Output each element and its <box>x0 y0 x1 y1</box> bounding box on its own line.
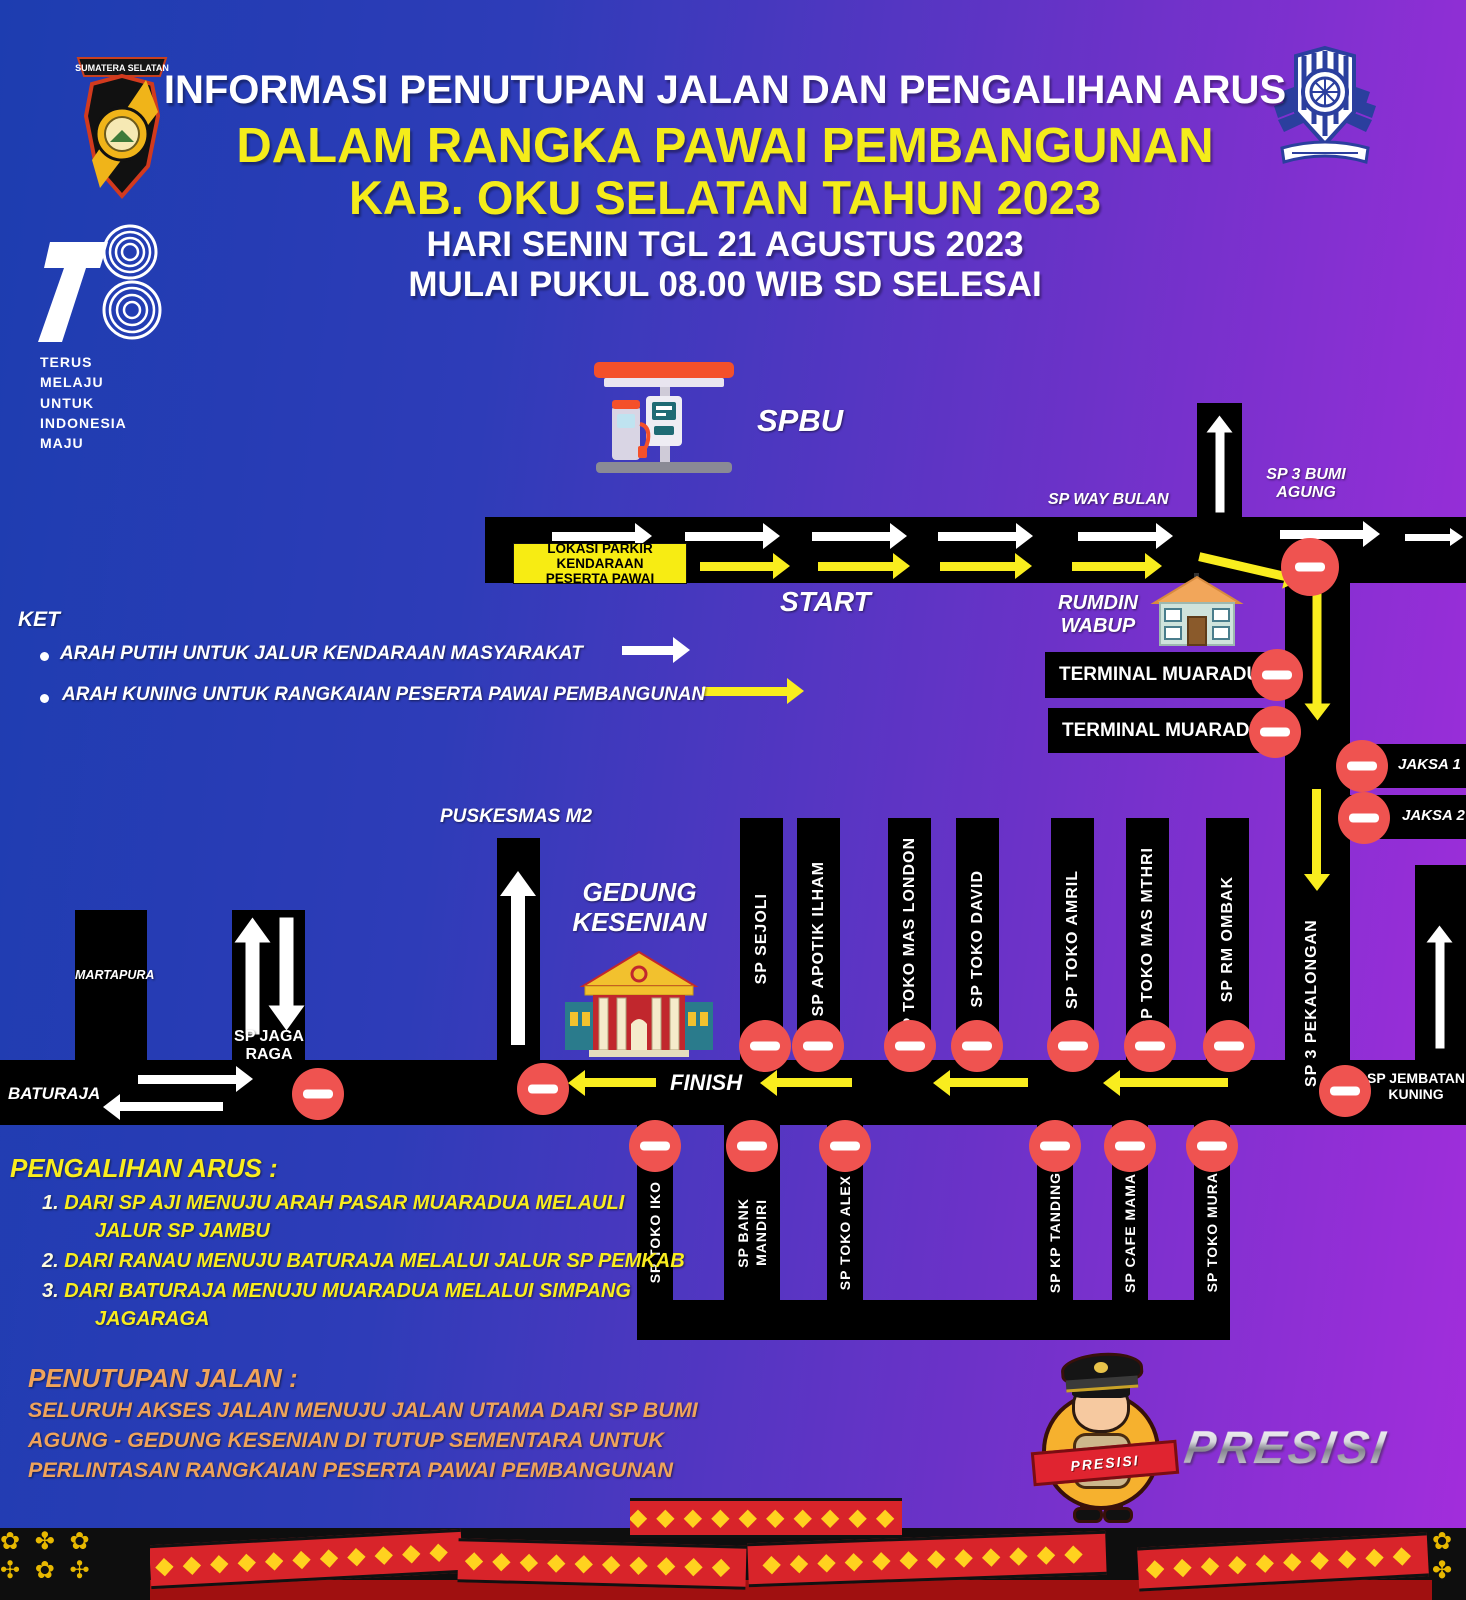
label-terminal-2: TERMINAL MUARADUA <box>1062 720 1277 742</box>
pengalihan-item-1: 1. DARI SP AJI MENUJU ARAH PASAR MUARADU… <box>42 1192 624 1215</box>
branch-label: SP KP TANDING <box>1047 1172 1063 1293</box>
no-entry-sign-terminal-2 <box>1249 706 1301 758</box>
penutupan-line3: PERLINTASAN RANGKAIAN PESERTA PAWAI PEMB… <box>28 1458 673 1483</box>
badge-banner-text: SUMATERA SELATAN <box>75 63 169 73</box>
diamond-band: ◆◆◆◆◆◆◆◆◆◆ <box>457 1538 746 1590</box>
no-entry-sign-toko-mas-mthri <box>1124 1020 1176 1072</box>
parade-arrow-yellow <box>1072 553 1162 579</box>
tagline-line: MAJU <box>40 433 127 453</box>
flow-arrow-up <box>1207 416 1233 513</box>
flow-arrow-white <box>812 523 907 549</box>
parade-arrow-left <box>1103 1070 1228 1096</box>
parking-location-box: LOKASI PARKIR KENDARAAN PESERTA PAWAI <box>513 543 687 584</box>
mascot-shoe <box>1076 1510 1100 1520</box>
flow-arrow-up <box>235 918 271 1035</box>
label-sp-way-bulan: SP WAY BULAN <box>1048 491 1169 509</box>
flow-arrow-white <box>1078 523 1173 549</box>
penutupan-title: PENUTUPAN JALAN : <box>28 1364 298 1394</box>
item-number: 3. <box>42 1280 59 1302</box>
label-spbu: SPBU <box>757 403 843 439</box>
parking-line1: LOKASI PARKIR KENDARAAN <box>514 541 686 571</box>
no-entry-sign-bumi-agung <box>1281 538 1339 596</box>
pengalihan-item-1-line2: JALUR SP JAMBU <box>95 1220 270 1243</box>
pengalihan-item-3-line2: JAGARAGA <box>95 1308 209 1331</box>
no-entry-sign-toko-mas-london <box>884 1020 936 1072</box>
branch-label: SP CAFE MAMA <box>1122 1173 1138 1293</box>
diamond-pattern: ◆◆◆◆◆◆◆◆◆◆◆◆ <box>762 1541 1092 1576</box>
diamond-pattern: ◆◆◆◆◆◆◆◆◆◆◆ <box>155 1539 458 1579</box>
legend-bullet <box>40 652 49 661</box>
parking-line2: PESERTA PAWAI <box>514 571 686 586</box>
label-martapura: MARTAPURA <box>75 968 147 982</box>
tagline-78: TERUS MELAJU UNTUK INDONESIA MAJU <box>40 352 127 453</box>
no-entry-sign-puskesmas <box>517 1063 569 1115</box>
songket-pattern-left: ✿ ✤ ✿ ✣ ✿ ✣ <box>0 1528 150 1600</box>
label-start: START <box>780 586 871 618</box>
label-line: SP 3 BUMI <box>1252 466 1360 484</box>
item-text: DARI SP AJI MENUJU ARAH PASAR MUARADUA M… <box>64 1192 624 1214</box>
gas-station-icon <box>582 358 747 490</box>
flow-arrow-up <box>1427 926 1453 1049</box>
branch-label: SP TOKO DAVID <box>969 870 987 1007</box>
road-martapura <box>75 910 147 1060</box>
label-terminal-1: TERMINAL MUARADUA <box>1059 664 1274 686</box>
label-line: KESENIAN <box>562 908 717 938</box>
flow-arrow-up <box>500 871 536 1045</box>
branch-label: SP TOKO MURA <box>1204 1172 1220 1292</box>
no-entry-sign-jaksa-1 <box>1336 740 1388 792</box>
branch-label: SP TOKO MAS MTHRI <box>1139 847 1157 1031</box>
house-icon <box>1150 571 1244 649</box>
presisi-wordmark: PRESISI <box>1181 1420 1391 1474</box>
flow-arrow-left <box>103 1094 223 1120</box>
label-baturaja: BATURAJA <box>8 1084 100 1104</box>
item-text: DARI RANAU MENUJU BATURAJA MELALUI JALUR… <box>64 1250 684 1272</box>
police-badge-logo: SUMATERA SELATAN <box>70 50 174 206</box>
branch-label: SP BANK <box>735 1198 751 1268</box>
pengalihan-item-2: 2. DARI RANAU MENUJU BATURAJA MELALUI JA… <box>42 1250 685 1273</box>
label-sp3-bumi-agung: SP 3 BUMI AGUNG <box>1252 466 1360 503</box>
item-number: 1. <box>42 1192 59 1214</box>
no-entry-sign-cafe-mama <box>1104 1120 1156 1172</box>
label-line: KUNING <box>1366 1086 1466 1102</box>
hut-ri-78-logo <box>30 212 180 354</box>
poster-title-line2: DALAM RANGKA PAWAI PEMBANGUNAN <box>160 118 1290 174</box>
parade-arrow-yellow <box>700 553 790 579</box>
road-lower-connector <box>637 1300 1230 1340</box>
legend-bullet <box>40 694 49 703</box>
tagline-line: MELAJU <box>40 372 127 392</box>
flower-icon: ✤ <box>1432 1557 1456 1584</box>
legend-arrow-yellow <box>702 678 804 704</box>
poster-title-line1: INFORMASI PENUTUPAN JALAN DAN PENGALIHAN… <box>160 68 1290 113</box>
poster-subtitle-line1: HARI SENIN TGL 21 AGUSTUS 2023 <box>160 225 1290 265</box>
label-line: RAGA <box>228 1046 310 1064</box>
branch-label: SP TOKO ALEX <box>837 1175 853 1290</box>
penutupan-line1: SELURUH AKSES JALAN MENUJU JALAN UTAMA D… <box>28 1398 698 1423</box>
mascot-shoe <box>1106 1510 1130 1520</box>
label-line: WABUP <box>1048 615 1148 638</box>
diamond-band: ◆◆◆◆◆◆◆◆◆◆ <box>630 1498 902 1538</box>
tagline-line: UNTUK <box>40 393 127 413</box>
legend-title: KET <box>18 608 60 632</box>
branch-label: SP TOKO AMRIL <box>1064 870 1082 1009</box>
no-entry-sign-bank-mandiri <box>726 1120 778 1172</box>
label-line: GEDUNG <box>562 878 717 908</box>
parade-arrow-left <box>568 1070 656 1096</box>
no-entry-sign-kp-tanding <box>1029 1120 1081 1172</box>
parade-arrow-down <box>1305 594 1331 721</box>
no-entry-sign-sejoli <box>739 1020 791 1072</box>
parade-arrow-left <box>933 1070 1028 1096</box>
tagline-line: TERUS <box>40 352 127 372</box>
road-terminal-muaradua-1: TERMINAL MUARADUA <box>1045 652 1277 698</box>
legend-arrow-white <box>622 637 690 663</box>
label-gedung-kesenian: GEDUNG KESENIAN <box>562 878 717 938</box>
label-finish: FINISH <box>670 1070 742 1095</box>
songket-pattern-right: ✿ ✤ <box>1432 1528 1466 1600</box>
flow-arrow-right <box>138 1066 253 1092</box>
label-rumdin-wabup: RUMDIN WABUP <box>1048 592 1148 638</box>
parade-arrow-yellow <box>818 553 910 579</box>
parade-arrow-yellow <box>940 553 1032 579</box>
mascot-cap-emblem <box>1094 1362 1108 1373</box>
flower-icon: ✣ ✿ ✣ <box>0 1557 94 1584</box>
infographic-poster: SUMATERA SELATAN INFORMASI PENUTUPAN JAL… <box>0 0 1466 1600</box>
no-entry-sign-toko-amril <box>1047 1020 1099 1072</box>
label-sp-jaga-raga: SP JAGA RAGA <box>228 1028 310 1065</box>
flow-arrow-down <box>269 918 305 1031</box>
legend-item-yellow: ARAH KUNING UNTUK RANGKAIAN PESERTA PAWA… <box>62 684 705 706</box>
label-line: AGUNG <box>1252 484 1360 502</box>
branch-label: SP APOTIK ILHAM <box>810 861 828 1016</box>
item-text: DARI BATURAJA MENUJU MUARADUA MELALUI SI… <box>64 1280 631 1302</box>
label-jaksa-2: JAKSA 2 <box>1402 807 1465 824</box>
label-line: SP JEMBATAN <box>1366 1070 1466 1086</box>
pengalihan-title: PENGALIHAN ARUS : <box>10 1154 278 1184</box>
tagline-line: INDONESIA <box>40 413 127 433</box>
no-entry-sign-rm-ombak <box>1203 1020 1255 1072</box>
flow-arrow-white <box>1405 524 1463 550</box>
parade-arrow-left <box>760 1070 852 1096</box>
diamond-pattern: ◆◆◆◆◆◆◆◆◆◆ <box>464 1548 739 1579</box>
diamond-pattern: ◆◆◆◆◆◆◆◆◆◆ <box>1145 1543 1420 1581</box>
penutupan-line2: AGUNG - GEDUNG KESENIAN DI TUTUP SEMENTA… <box>28 1428 664 1453</box>
flower-icon: ✿ <box>1432 1528 1456 1555</box>
label-sp3-pekalongan: SP 3 PEKALONGAN <box>1303 862 1321 1087</box>
branch-label: SP SEJOLI <box>753 893 771 984</box>
label-puskesmas: PUSKESMAS M2 <box>440 806 592 828</box>
no-entry-sign-jembatan-kuning <box>1319 1065 1371 1117</box>
diamond-pattern: ◆◆◆◆◆◆◆◆◆◆ <box>630 1506 902 1530</box>
flow-arrow-white <box>685 523 780 549</box>
poster-title-line3: KAB. OKU SELATAN TAHUN 2023 <box>160 170 1290 225</box>
label-line: RUMDIN <box>1048 592 1148 615</box>
flower-icon: ✿ ✤ ✿ <box>0 1528 94 1555</box>
label-sp-jembatan-kuning: SP JEMBATAN KUNING <box>1366 1070 1466 1102</box>
no-entry-sign-toko-alex <box>819 1120 871 1172</box>
police-mascot: PRESISI <box>1042 1358 1162 1528</box>
no-entry-sign-toko-david <box>951 1020 1003 1072</box>
branch-label: SP TOKO MAS LONDON <box>901 837 919 1040</box>
no-entry-sign-toko-mura <box>1186 1120 1238 1172</box>
flow-arrow-white <box>938 523 1033 549</box>
no-entry-sign-jaga-raga <box>292 1068 344 1120</box>
pengalihan-item-3: 3. DARI BATURAJA MENUJU MUARADUA MELALUI… <box>42 1280 631 1303</box>
item-number: 2. <box>42 1250 59 1272</box>
legend-item-white: ARAH PUTIH UNTUK JALUR KENDARAAN MASYARA… <box>60 643 583 665</box>
no-entry-sign-apotik-ilham <box>792 1020 844 1072</box>
branch-label: SP RM OMBAK <box>1219 876 1237 1002</box>
no-entry-sign-toko-iko <box>629 1120 681 1172</box>
road-terminal-muaradua-2: TERMINAL MUARADUA <box>1048 708 1277 753</box>
no-entry-sign-jaksa-2 <box>1338 792 1390 844</box>
label-jaksa-1: JAKSA 1 <box>1398 756 1461 773</box>
no-entry-sign-terminal-1 <box>1251 649 1303 701</box>
mascot-ribbon-text: PRESISI <box>1070 1452 1140 1474</box>
label-line: SP JAGA <box>228 1028 310 1046</box>
arts-building-icon <box>563 950 715 1058</box>
poster-subtitle-line2: MULAI PUKUL 08.00 WIB SD SELESAI <box>160 265 1290 305</box>
branch-label: MANDIRI <box>753 1199 769 1266</box>
